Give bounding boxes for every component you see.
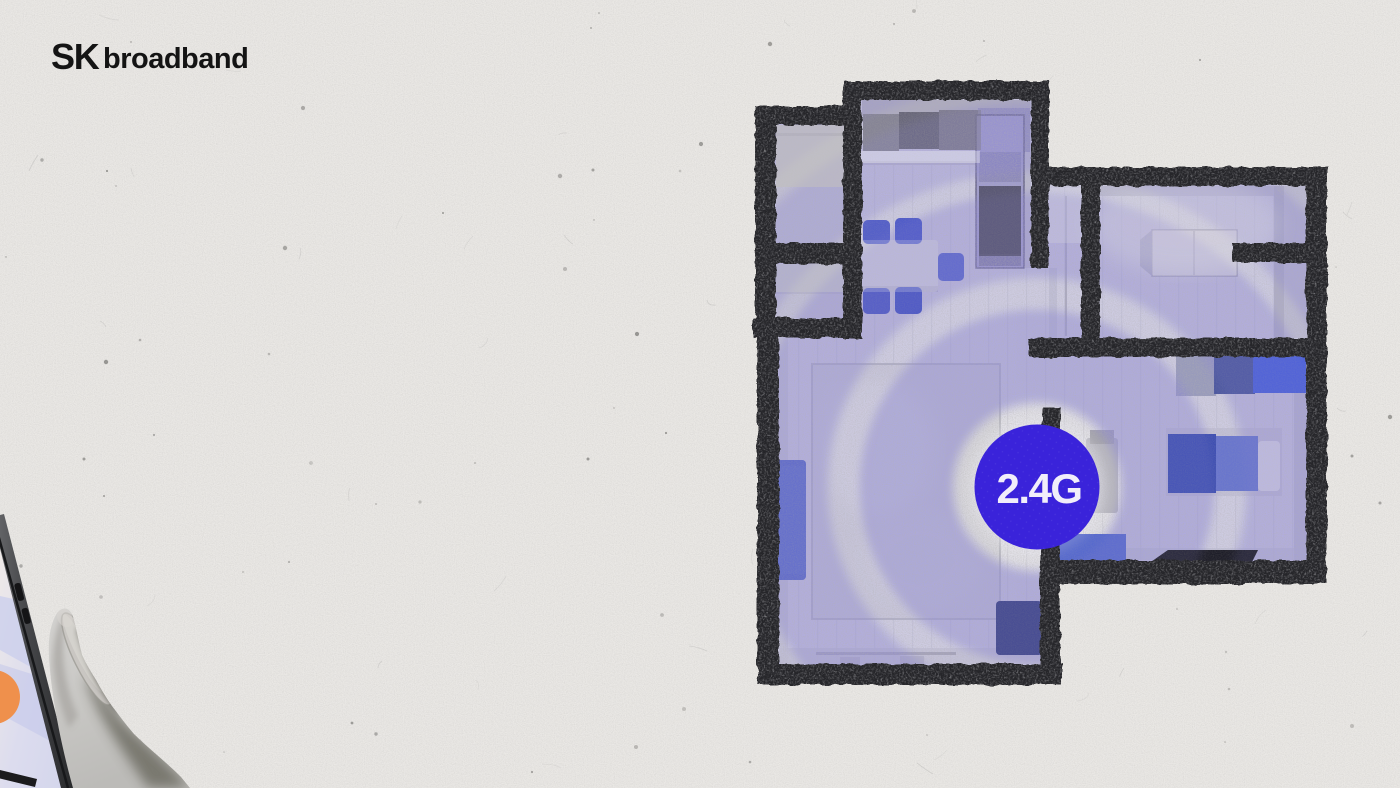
svg-text:broadband: broadband — [103, 43, 248, 75]
svg-text:2.4G: 2.4G — [996, 465, 1081, 512]
svg-text:SK: SK — [51, 36, 100, 77]
